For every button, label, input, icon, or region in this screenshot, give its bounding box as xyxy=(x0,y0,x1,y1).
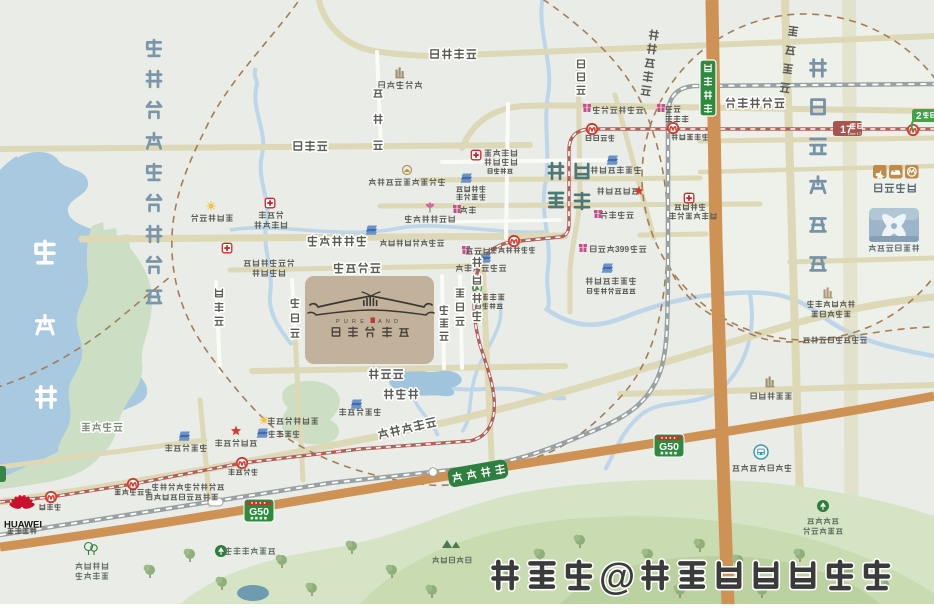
svg-text:HUAWEI: HUAWEI xyxy=(4,519,42,530)
svg-text:G50: G50 xyxy=(249,506,269,518)
svg-text:@: @ xyxy=(599,556,635,597)
svg-text:G50: G50 xyxy=(659,441,679,453)
svg-text:Line 17: Line 17 xyxy=(848,131,862,136)
svg-text:2: 2 xyxy=(916,111,922,122)
svg-text:399: 399 xyxy=(615,244,629,254)
svg-text:AND: AND xyxy=(378,319,402,325)
svg-text:PURE: PURE xyxy=(336,319,368,325)
